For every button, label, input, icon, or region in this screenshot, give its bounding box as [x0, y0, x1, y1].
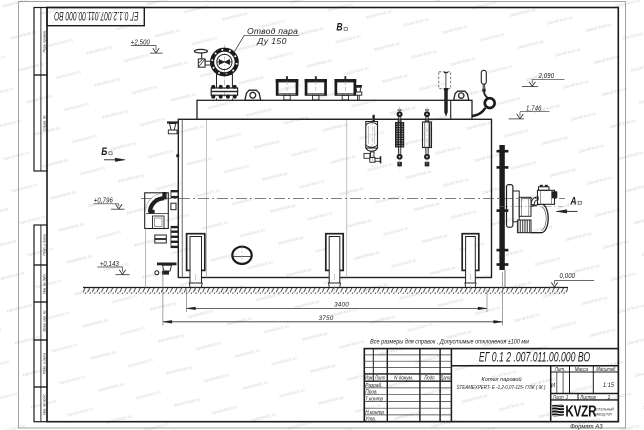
svg-text:Листов: Листов [579, 395, 596, 400]
svg-text:Т.контр: Т.контр [365, 396, 383, 402]
svg-text:Перв. примен.: Перв. примен. [42, 30, 46, 53]
svg-text:Подп. и дата: Подп. и дата [42, 234, 46, 255]
svg-text:Инв. № подл.: Инв. № подл. [42, 394, 46, 415]
svg-text:ЗАВОД РЭП: ЗАВОД РЭП [595, 412, 613, 416]
svg-text:Лист: Лист [374, 375, 386, 380]
svg-text:3400: 3400 [334, 301, 349, 308]
svg-text:Б: Б [101, 146, 107, 158]
svg-text:Масштаб: Масштаб [596, 367, 615, 372]
svg-text:Утв.: Утв. [365, 416, 376, 422]
svg-text:Отвод пара: Отвод пара [247, 26, 298, 36]
svg-text:Все размеры для справок , Допу: Все размеры для справок , Допустимые отк… [370, 339, 529, 345]
svg-text:Разраб.: Разраб. [365, 383, 382, 389]
svg-text:ЕГ 0.1 2 .007.011.00.000 ВО: ЕГ 0.1 2 .007.011.00.000 ВО [479, 349, 590, 365]
svg-text:0,000: 0,000 [560, 273, 576, 281]
svg-text:КОТЕЛЬНЫЙ: КОТЕЛЬНЫЙ [595, 407, 615, 411]
svg-text:Лист: Лист [552, 395, 564, 400]
svg-text:2: 2 [607, 395, 611, 401]
svg-text:STEAMEXPERT- Е -1,2-0,07-115-: STEAMEXPERT- Е -1,2-0,07-115- ГЛЖ ( Ж ) [457, 385, 546, 391]
svg-text:Инв. № дубл.: Инв. № дубл. [42, 273, 46, 294]
svg-text:Подп. и дата: Подп. и дата [42, 353, 46, 374]
svg-text:А: А [570, 196, 577, 208]
svg-text:3750: 3750 [319, 315, 334, 322]
svg-text:Ду 150: Ду 150 [256, 36, 287, 46]
svg-text:N докум.: N докум. [394, 375, 413, 381]
svg-text:В: В [336, 22, 342, 34]
svg-text:Подп.: Подп. [424, 375, 435, 380]
svg-text:2,090: 2,090 [538, 72, 555, 80]
svg-text:И: И [551, 382, 556, 389]
svg-text:Изм: Изм [365, 375, 373, 380]
svg-text:Взам. инв. №: Взам. инв. № [42, 310, 46, 331]
svg-text:Лит.: Лит. [554, 367, 565, 373]
svg-text:1: 1 [566, 395, 569, 401]
svg-text:Дата: Дата [439, 375, 451, 380]
svg-text:KVZR: KVZR [565, 401, 596, 419]
svg-text:Н.контр: Н.контр [365, 410, 384, 416]
svg-text:Формат А3: Формат А3 [570, 423, 603, 430]
svg-text:1:15: 1:15 [603, 382, 615, 389]
svg-text:Котел паровой: Котел паровой [481, 376, 522, 383]
svg-text:ЕГ 0.1.2.007.011.00.000 ВО: ЕГ 0.1.2.007.011.00.000 ВО [54, 8, 139, 22]
svg-text:Масса: Масса [575, 367, 589, 373]
svg-text:Пров.: Пров. [365, 389, 378, 395]
svg-text:Справ. №: Справ. № [42, 115, 46, 131]
